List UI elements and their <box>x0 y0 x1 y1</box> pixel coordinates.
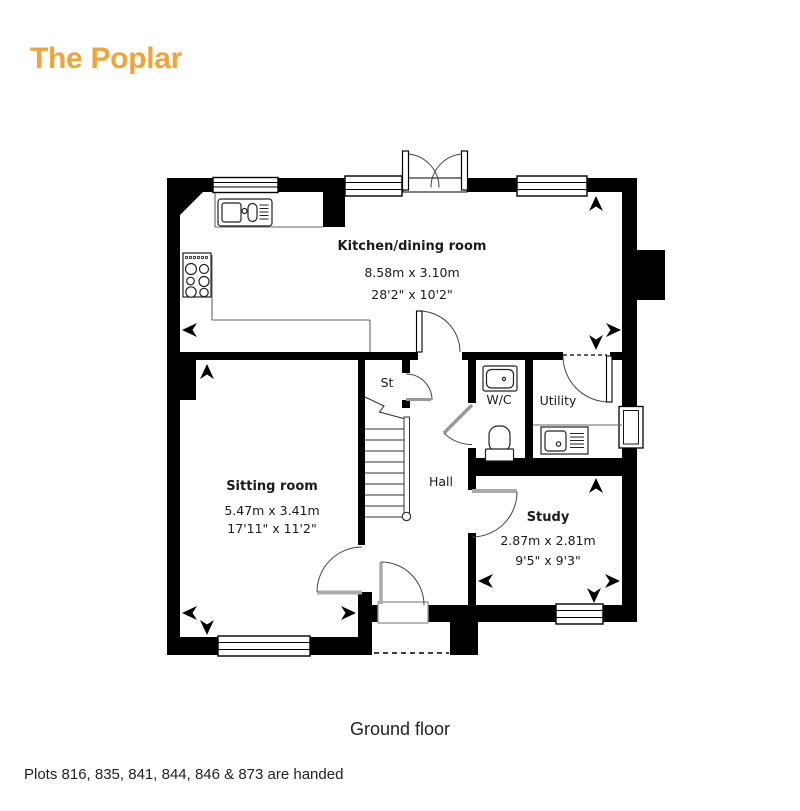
french-doors <box>403 151 468 192</box>
wall <box>467 178 517 192</box>
stairs <box>365 397 411 521</box>
wall <box>468 352 476 403</box>
arrow-down <box>587 588 601 603</box>
wc-basin <box>483 366 517 391</box>
arrow-up <box>589 196 603 211</box>
sitting-room-dim-metric: 5.47m x 3.41m <box>224 503 319 518</box>
wall <box>180 352 418 360</box>
page: { "title": "The Poplar", "colors": { "ac… <box>0 0 800 811</box>
arrow-left <box>182 323 197 337</box>
toilet <box>486 426 514 461</box>
store-door <box>406 374 432 400</box>
sitting-room-dim-imperial: 17'11" x 11'2" <box>227 521 316 536</box>
kitchen-hall-door <box>417 311 461 352</box>
wall-right <box>622 192 637 408</box>
utility-fixtures <box>533 425 622 454</box>
study-window <box>556 604 603 624</box>
wall <box>167 637 218 655</box>
dining-window-2 <box>517 176 587 196</box>
french-door-leaf <box>403 151 409 190</box>
study-dim-imperial: 9'5" x 9'3" <box>515 553 581 568</box>
utility-label: Utility <box>540 393 577 408</box>
kitchen-sink <box>218 199 272 226</box>
wall <box>428 605 556 622</box>
wall-pier <box>180 360 196 400</box>
wall-porch-pier <box>450 622 478 655</box>
wall-right <box>622 447 637 622</box>
kitchen-dim-imperial: 28'2" x 10'2" <box>371 287 452 302</box>
wc-door <box>444 405 472 445</box>
arrow-left <box>478 574 493 588</box>
sitting-room-window <box>218 636 310 656</box>
floor-label: Ground floor <box>350 719 450 740</box>
wall-chamfer <box>180 192 203 215</box>
wall <box>468 533 476 605</box>
wall <box>372 605 378 622</box>
wc-label: W/C <box>486 392 511 407</box>
study-dim-metric: 2.87m x 2.81m <box>500 533 595 548</box>
arrow-down <box>589 335 603 350</box>
arrow-left <box>182 606 197 620</box>
study-label: Study <box>527 510 570 525</box>
floor-plan <box>0 0 800 811</box>
dining-window <box>345 176 402 196</box>
wall <box>587 178 637 192</box>
wall <box>402 400 410 408</box>
hob <box>183 253 211 297</box>
wall <box>358 360 365 545</box>
sitting-room-door <box>317 547 362 593</box>
front-door <box>378 562 428 623</box>
arrow-up <box>200 364 214 379</box>
back-door <box>619 407 643 449</box>
arrow-right <box>605 574 620 588</box>
french-door-leaf <box>462 151 468 190</box>
arrow-right <box>606 323 621 337</box>
utility-sink <box>541 427 588 454</box>
arrow-right <box>341 606 356 620</box>
kitchen-label: Kitchen/dining room <box>338 239 487 254</box>
store-label: St <box>381 375 394 390</box>
hall-label: Hall <box>429 474 453 489</box>
wall <box>462 352 563 360</box>
wall <box>278 178 323 192</box>
wall <box>310 637 372 655</box>
wall-pier <box>323 178 345 227</box>
wall <box>402 360 410 373</box>
study-door <box>472 491 517 537</box>
sitting-room-label: Sitting room <box>226 479 318 494</box>
measure-arrows <box>182 196 621 635</box>
wall-left <box>167 178 180 655</box>
chimney <box>637 250 665 300</box>
stairs-newel <box>402 512 410 520</box>
wc-fixtures <box>483 366 517 461</box>
kitchen-window <box>213 178 278 193</box>
kitchen-dim-metric: 8.58m x 3.10m <box>364 265 459 280</box>
handed-plots-note: Plots 816, 835, 841, 844, 846 & 873 are … <box>24 766 343 783</box>
stairs-handrail <box>404 417 410 514</box>
arrow-down <box>200 620 214 635</box>
arrow-up <box>589 478 603 493</box>
